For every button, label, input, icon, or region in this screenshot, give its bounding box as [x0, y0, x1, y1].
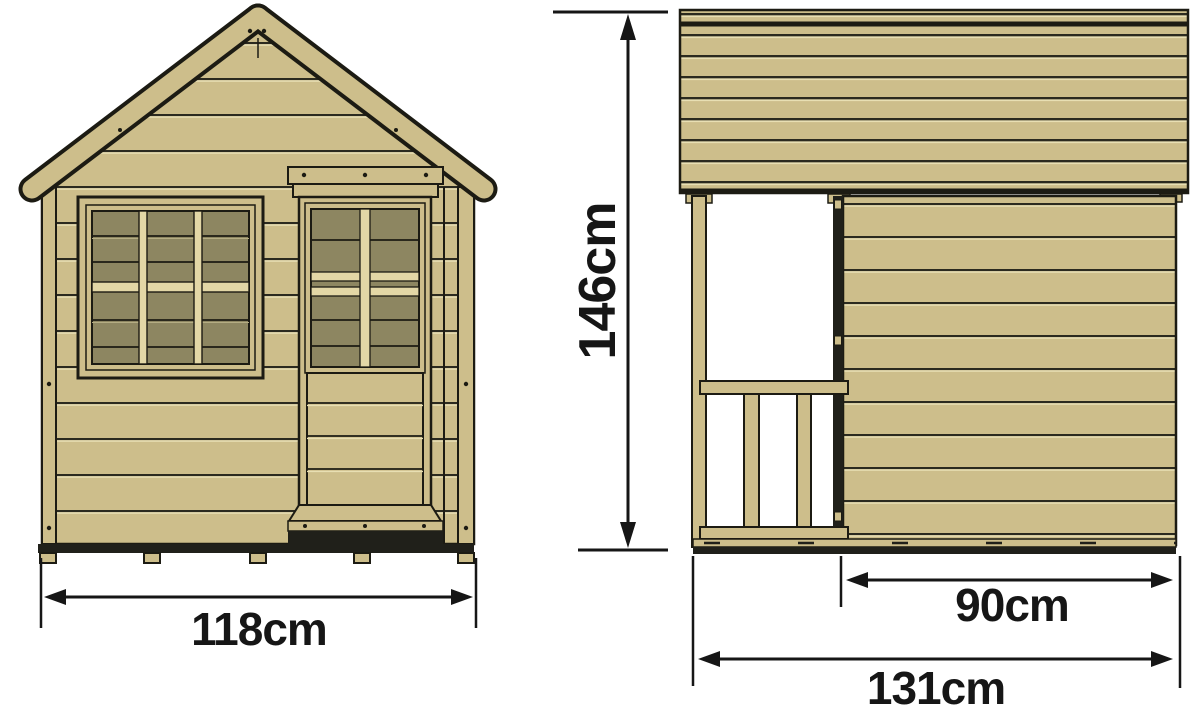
- porch-post: [692, 196, 706, 547]
- dim-label-side-height: 146cm: [569, 203, 627, 360]
- railing-bottom-rail: [700, 527, 848, 539]
- railing-baluster: [744, 394, 759, 527]
- foot: [354, 553, 370, 563]
- roof-peak-screw: [248, 29, 252, 33]
- side-roof: [680, 10, 1188, 203]
- foot: [458, 553, 474, 563]
- dim-label-side-total-depth: 131cm: [867, 662, 1005, 712]
- side-wall: [843, 196, 1176, 545]
- arrowhead-down: [620, 522, 636, 548]
- side-porch: [692, 196, 848, 547]
- door-hinge: [835, 200, 842, 209]
- arrowhead-right: [1151, 651, 1173, 667]
- door-sill: [289, 505, 441, 521]
- door-shadow-band: [288, 531, 443, 544]
- dim-front-width: 118cm: [41, 558, 476, 655]
- foot: [250, 553, 266, 563]
- dim-side-wall-depth: 90cm: [841, 556, 1173, 631]
- foot: [144, 553, 160, 563]
- arrowhead-right: [1151, 572, 1173, 588]
- fascia-screw: [394, 128, 398, 132]
- roof-peak-screw: [262, 29, 266, 33]
- front-window: [78, 197, 263, 378]
- arrowhead-up: [620, 14, 636, 40]
- railing-top-rail: [700, 381, 848, 394]
- base-band: [38, 544, 474, 553]
- doorway-edge: [833, 196, 843, 545]
- door-hinge: [835, 512, 842, 521]
- arrowhead-left: [846, 572, 868, 588]
- dim-label-front-width: 118cm: [191, 603, 327, 655]
- playhouse-diagram: 118cm: [0, 0, 1200, 712]
- diagram-canvas: 118cm: [0, 0, 1200, 712]
- railing-baluster: [797, 394, 811, 527]
- deck-board: [693, 539, 1176, 547]
- base-band: [693, 547, 1176, 554]
- window-mullion: [139, 211, 147, 364]
- window-mullion: [194, 211, 202, 364]
- door-cornice: [293, 184, 438, 197]
- arrowhead-left: [44, 589, 66, 605]
- door-hinge: [835, 336, 842, 345]
- roof-planks: [680, 10, 1188, 193]
- dim-label-side-wall-depth: 90cm: [955, 579, 1069, 631]
- front-base: [38, 544, 474, 563]
- fascia-screw: [118, 128, 122, 132]
- arrowhead-right: [451, 589, 473, 605]
- side-base: [693, 539, 1176, 554]
- dim-side-height: 146cm: [553, 12, 668, 550]
- front-view: 118cm: [32, 17, 484, 655]
- arrowhead-left: [698, 651, 720, 667]
- side-view: 146cm 90cm 131cm: [553, 10, 1188, 712]
- front-door: [288, 167, 443, 544]
- door-mullion: [360, 209, 370, 367]
- foot: [40, 553, 56, 563]
- window-rail: [92, 282, 249, 292]
